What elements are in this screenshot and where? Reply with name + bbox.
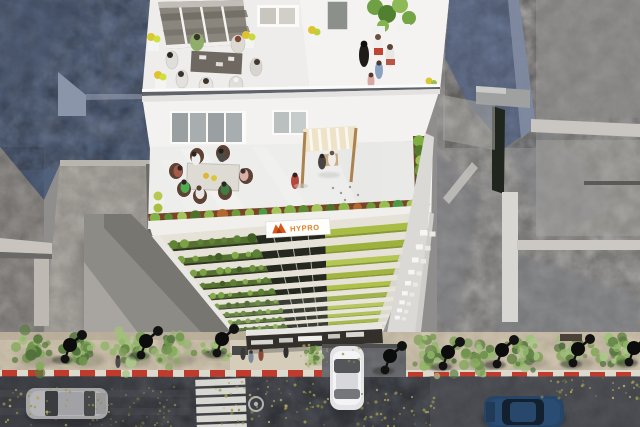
svg-text:HYPRO: HYPRO (290, 223, 320, 234)
